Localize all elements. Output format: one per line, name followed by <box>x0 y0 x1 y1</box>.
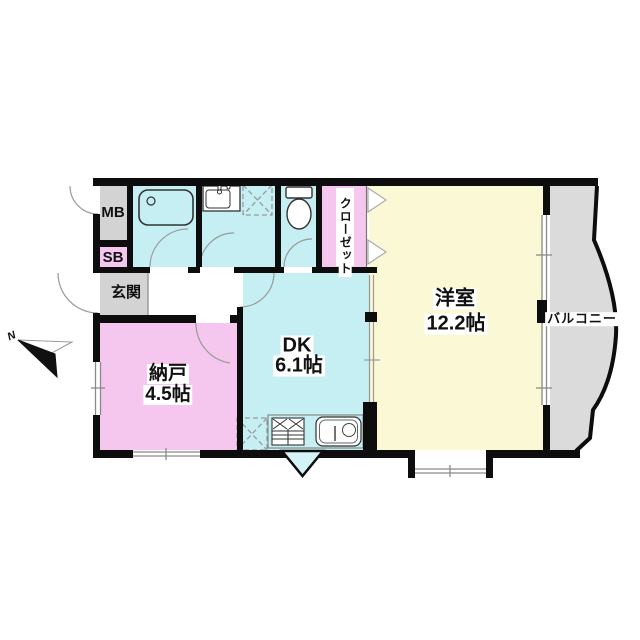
kitchen-sink-icon <box>316 417 361 446</box>
wall-bottom-3 <box>493 450 580 458</box>
meter-box-door-arc <box>70 186 98 214</box>
wall-dk-western-stub <box>365 312 377 322</box>
wall-storage-dk <box>237 307 243 450</box>
wall-dk-western-lower <box>363 402 377 458</box>
wall-wash-toilet <box>275 186 281 267</box>
wall-right-lower <box>543 405 550 458</box>
entrance-door-arc <box>58 273 98 313</box>
wall-toilet-closet <box>316 186 322 267</box>
hallway-floor <box>148 273 237 315</box>
wall-right-upper <box>543 178 550 215</box>
storage-room-size-label: 4.5帖 <box>143 385 192 405</box>
entrance-label: 玄関 <box>109 285 143 301</box>
western-room-label: 洋室 <box>433 289 477 310</box>
wall-band-bottom-2 <box>188 267 200 273</box>
wall-band-bottom-3 <box>234 267 284 273</box>
storage-room-label: 納戸 <box>147 364 189 384</box>
floor-plan-canvas: N MB SB 玄関 納戸 4.5帖 DK 6.1帖 洋室 12.2帖 クローゼ… <box>0 0 640 640</box>
meter-box-label: MB <box>99 205 126 221</box>
gas-stove-icon <box>272 418 304 445</box>
dining-kitchen-size-label: 6.1帖 <box>273 356 325 377</box>
dining-kitchen-label: DK <box>281 336 314 357</box>
floor-plan-drawing <box>0 0 640 640</box>
bathtub-icon <box>139 190 193 225</box>
wall-band-bottom-1 <box>93 267 150 273</box>
western-room-size-label: 12.2帖 <box>425 314 488 335</box>
wall-bath-wash <box>196 186 202 267</box>
wall-hall-storage-1 <box>93 315 196 323</box>
wall-mb-column-right <box>127 186 133 273</box>
bay-window <box>408 450 493 478</box>
wall-top <box>93 178 598 186</box>
balcony-label: バルコニー <box>545 312 619 326</box>
compass-north-icon <box>18 340 72 377</box>
wall-bottom-1 <box>93 450 133 458</box>
closet-label: クローゼット <box>339 195 352 277</box>
shoe-box-label: SB <box>101 250 126 266</box>
toilet-icon <box>286 187 312 229</box>
vent-triangle-icon <box>282 451 323 476</box>
